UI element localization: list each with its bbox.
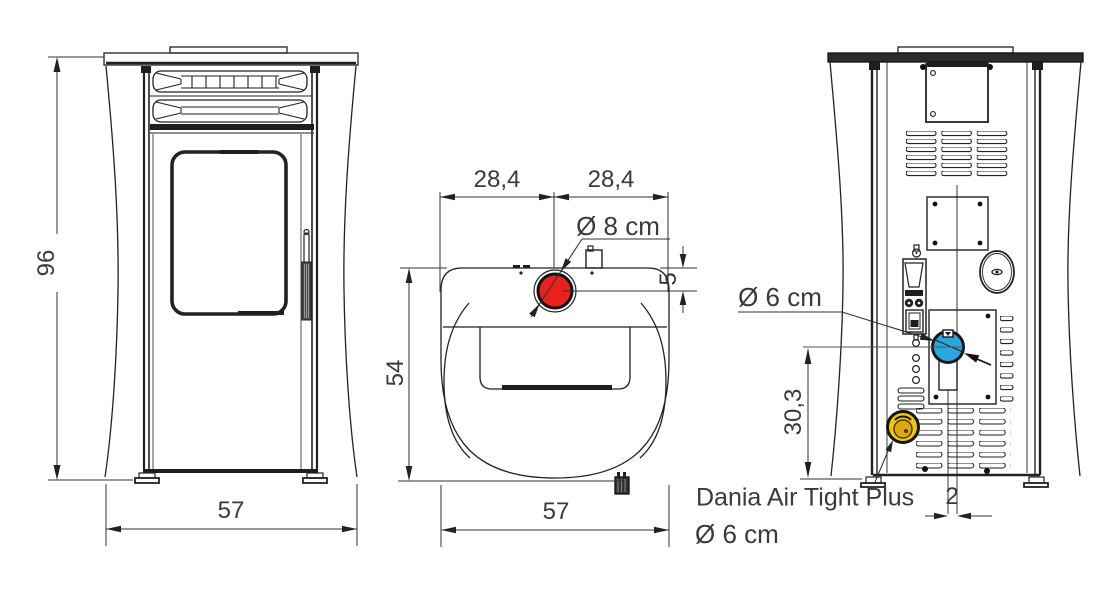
- power-switch[interactable]: [905, 263, 923, 287]
- dim-rear-center-offset: [925, 513, 992, 519]
- dim-label-rear-flue-height: 30,3: [782, 389, 806, 436]
- stove-dimension-drawing: 96 57 28,4 28,4 Ø 8 cm 5 54 57 Ø 6 cm 30…: [0, 0, 1108, 610]
- front-view: [104, 47, 358, 483]
- lower-vent-grille: [153, 100, 307, 122]
- upper-vent-grille: [153, 71, 307, 92]
- fan-housing: [980, 251, 1014, 293]
- top-cap-strip: [170, 47, 287, 53]
- front-dark-band: [150, 124, 314, 130]
- air-intake: [888, 412, 919, 443]
- power-plug: [615, 472, 629, 494]
- door-handle: [302, 230, 311, 321]
- top-view: [441, 246, 669, 494]
- dim-top-depth: [398, 268, 622, 481]
- dim-label-top-width: 57: [543, 500, 570, 524]
- rear-flue-assembly: [933, 330, 964, 390]
- dim-label-top-flue-diameter: Ø 8 cm: [576, 213, 660, 239]
- door-glass: [172, 152, 286, 314]
- rear-small-plate: [927, 197, 988, 250]
- rear-top-opening: [920, 62, 993, 122]
- rear-view: [828, 47, 1083, 514]
- rear-left-side-panel: [830, 62, 843, 476]
- left-side-panel: [105, 66, 118, 477]
- control-panel: [903, 245, 926, 383]
- dim-label-top-half-left: 28,4: [474, 168, 521, 192]
- rear-right-slots: [1000, 316, 1014, 405]
- dim-label-top-depth: 54: [384, 360, 408, 387]
- dim-label-front-width: 57: [218, 499, 245, 523]
- air-intake-name-label: Dania Air Tight Plus: [696, 486, 914, 511]
- top-bracket: [586, 250, 602, 268]
- dim-rear-flue-height: [800, 348, 862, 479]
- rear-lower-grille: [916, 408, 1011, 470]
- rear-upper-grille: [906, 131, 1012, 178]
- right-side-panel: [344, 66, 357, 477]
- top-recess: [480, 327, 630, 389]
- dim-label-rear-flue-diameter: Ø 6 cm: [738, 284, 822, 310]
- dim-label-top-half-right: 28,4: [588, 168, 635, 192]
- dim-label-front-height: 96: [35, 250, 59, 277]
- front-feet: [135, 473, 327, 483]
- dim-label-top-rear-offset: 5: [657, 272, 681, 285]
- air-intake-diameter-label: Ø 6 cm: [695, 521, 779, 547]
- rear-right-side-panel: [1068, 62, 1081, 476]
- dim-front-height: [48, 57, 133, 480]
- dim-label-rear-center-offset: 2: [945, 485, 958, 509]
